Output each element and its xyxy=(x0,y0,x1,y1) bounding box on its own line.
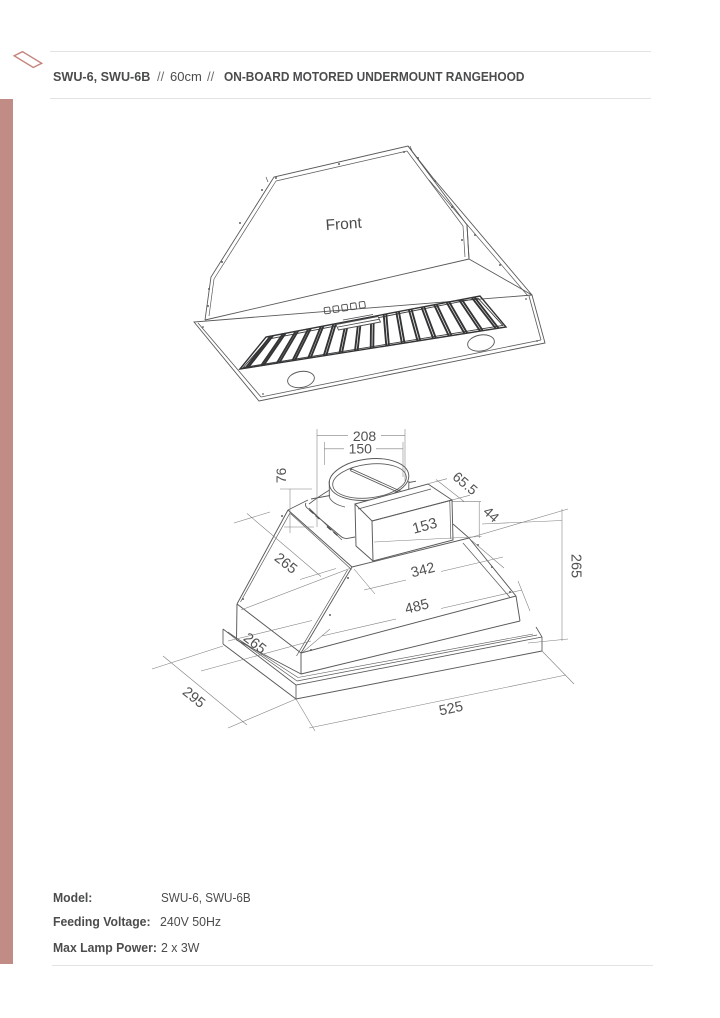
svg-text:342: 342 xyxy=(409,560,436,581)
svg-text:Front: Front xyxy=(325,215,363,235)
svg-text:485: 485 xyxy=(403,596,430,617)
svg-text:44: 44 xyxy=(480,503,502,525)
svg-text:150: 150 xyxy=(349,441,373,457)
svg-text:76: 76 xyxy=(273,468,289,484)
svg-text:265: 265 xyxy=(271,550,300,578)
svg-text:295: 295 xyxy=(179,684,208,712)
svg-text:525: 525 xyxy=(438,699,465,720)
svg-text:265: 265 xyxy=(568,554,584,578)
